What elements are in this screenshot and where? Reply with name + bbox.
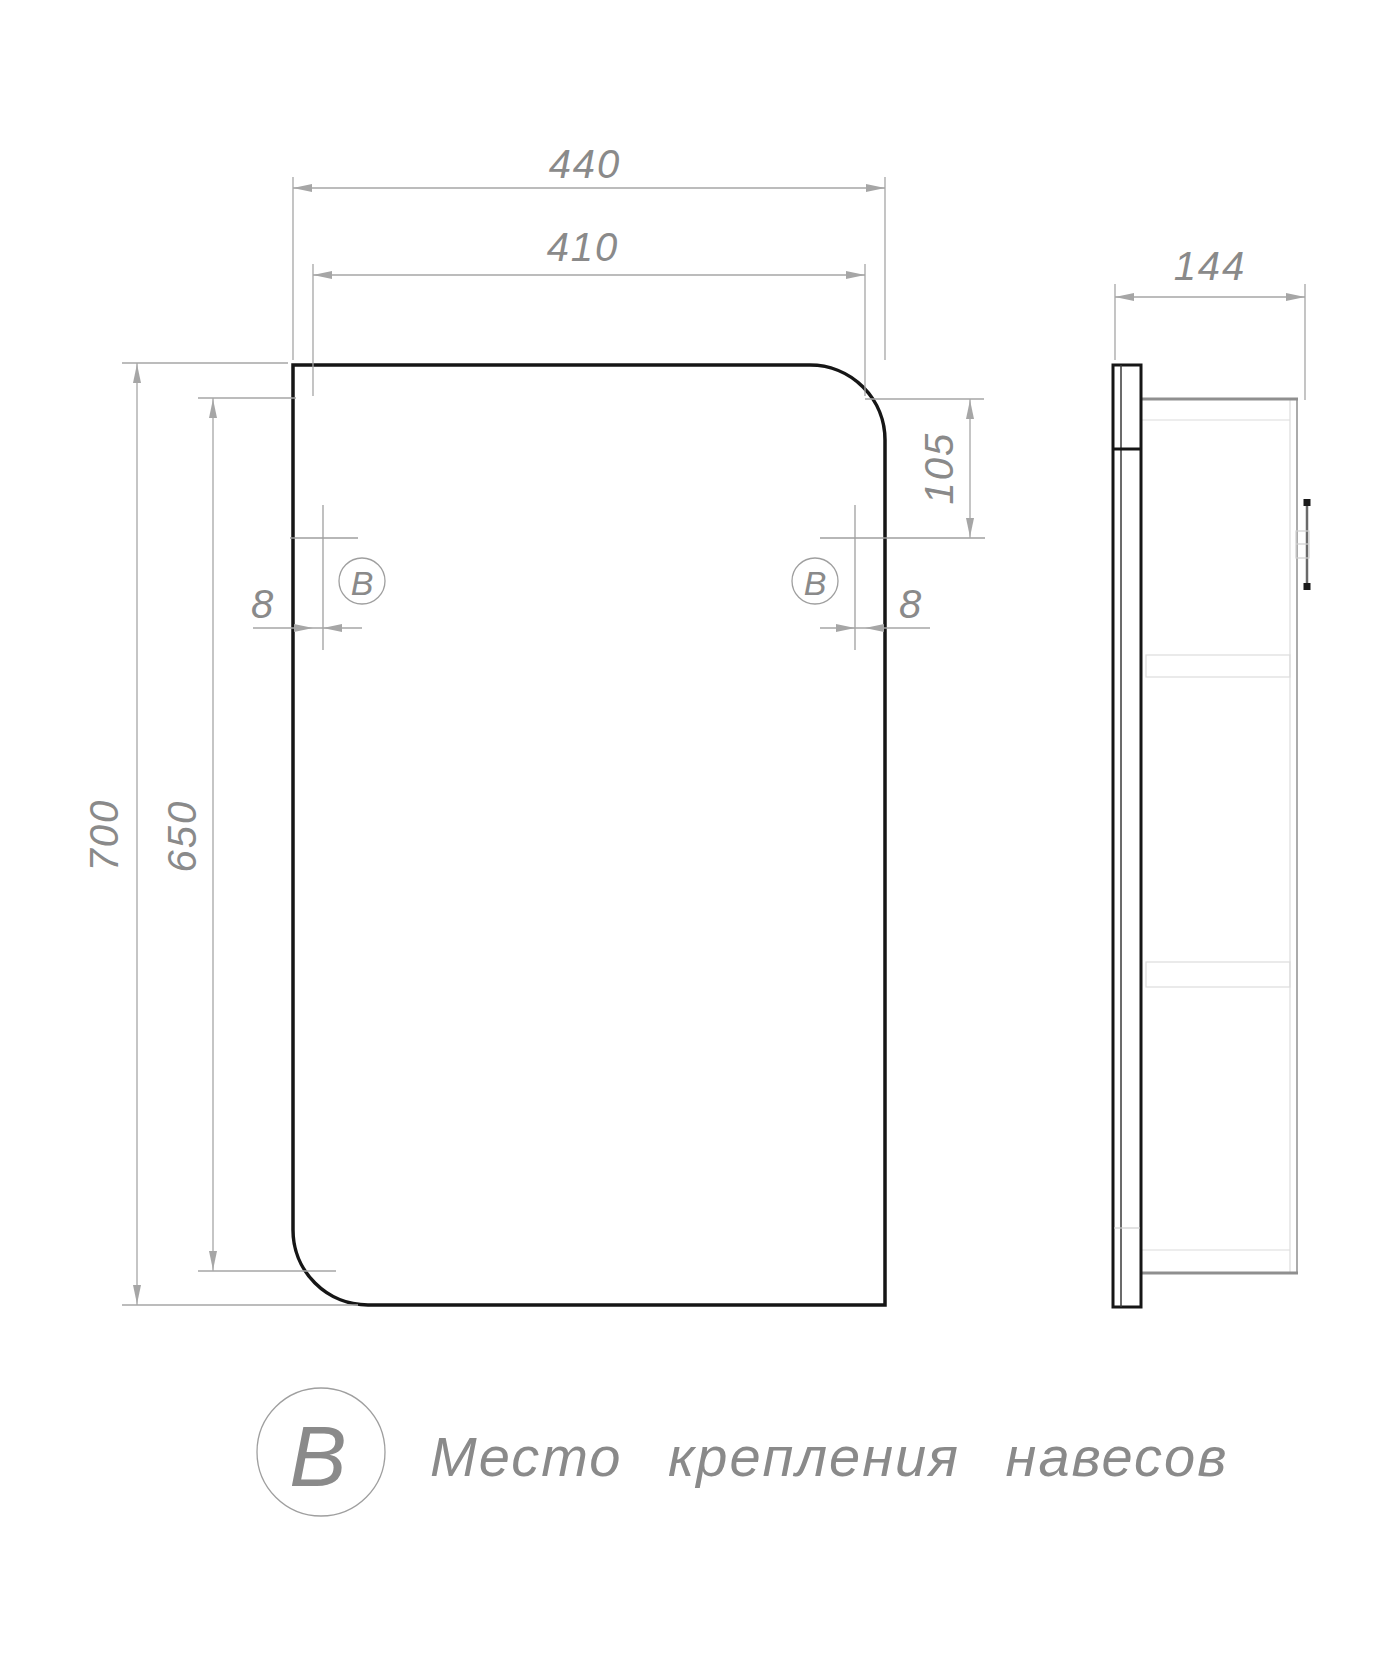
arrowhead [1286, 293, 1305, 301]
arrowhead [866, 184, 885, 192]
dim-label-opening-height: 650 [160, 800, 204, 873]
arrowhead [133, 1285, 141, 1304]
dimension-depth-144: 144 [1115, 244, 1305, 400]
dim-label-mirror-width: 410 [547, 225, 620, 269]
dim-label-mount-top-offset: 105 [917, 432, 961, 505]
mount-marker-label-left: В [351, 564, 374, 602]
dim-label-outer-height: 700 [82, 799, 126, 872]
dim-label-outer-width: 440 [549, 142, 622, 186]
arrowhead [966, 400, 974, 419]
mirror-door-outline [293, 365, 885, 1305]
mount-marker-label-right: В [804, 564, 827, 602]
legend: В Место крепления навесов [257, 1388, 1228, 1516]
wall-bracket [1296, 499, 1311, 590]
legend-text: Место крепления навесов [430, 1425, 1228, 1488]
dim-label-mount-side-right: 8 [899, 582, 923, 626]
dim-label-depth: 144 [1174, 244, 1247, 288]
bracket-cap-bottom [1304, 583, 1311, 590]
arrowhead [209, 1251, 217, 1270]
technical-drawing-sheet: В В 440 410 700 650 [0, 0, 1400, 1660]
dim-label-mount-side-left: 8 [251, 582, 275, 626]
extension-line [1115, 284, 1305, 400]
arrowhead [846, 271, 865, 279]
arrowhead [313, 271, 332, 279]
legend-marker-symbol: В [289, 1408, 346, 1504]
cabinet-dimension-drawing: В В 440 410 700 650 [0, 0, 1400, 1660]
shelf-upper-side [1146, 655, 1290, 677]
shelf-lower-side [1146, 962, 1290, 987]
front-view: В В [290, 365, 985, 1305]
arrowhead [966, 518, 974, 537]
arrowhead [1115, 293, 1134, 301]
side-view [1113, 365, 1311, 1307]
arrowhead [133, 364, 141, 383]
arrowhead [293, 184, 312, 192]
bracket-cap-top [1304, 499, 1311, 506]
mirror-door-side [1113, 365, 1141, 1307]
arrowhead [209, 399, 217, 418]
